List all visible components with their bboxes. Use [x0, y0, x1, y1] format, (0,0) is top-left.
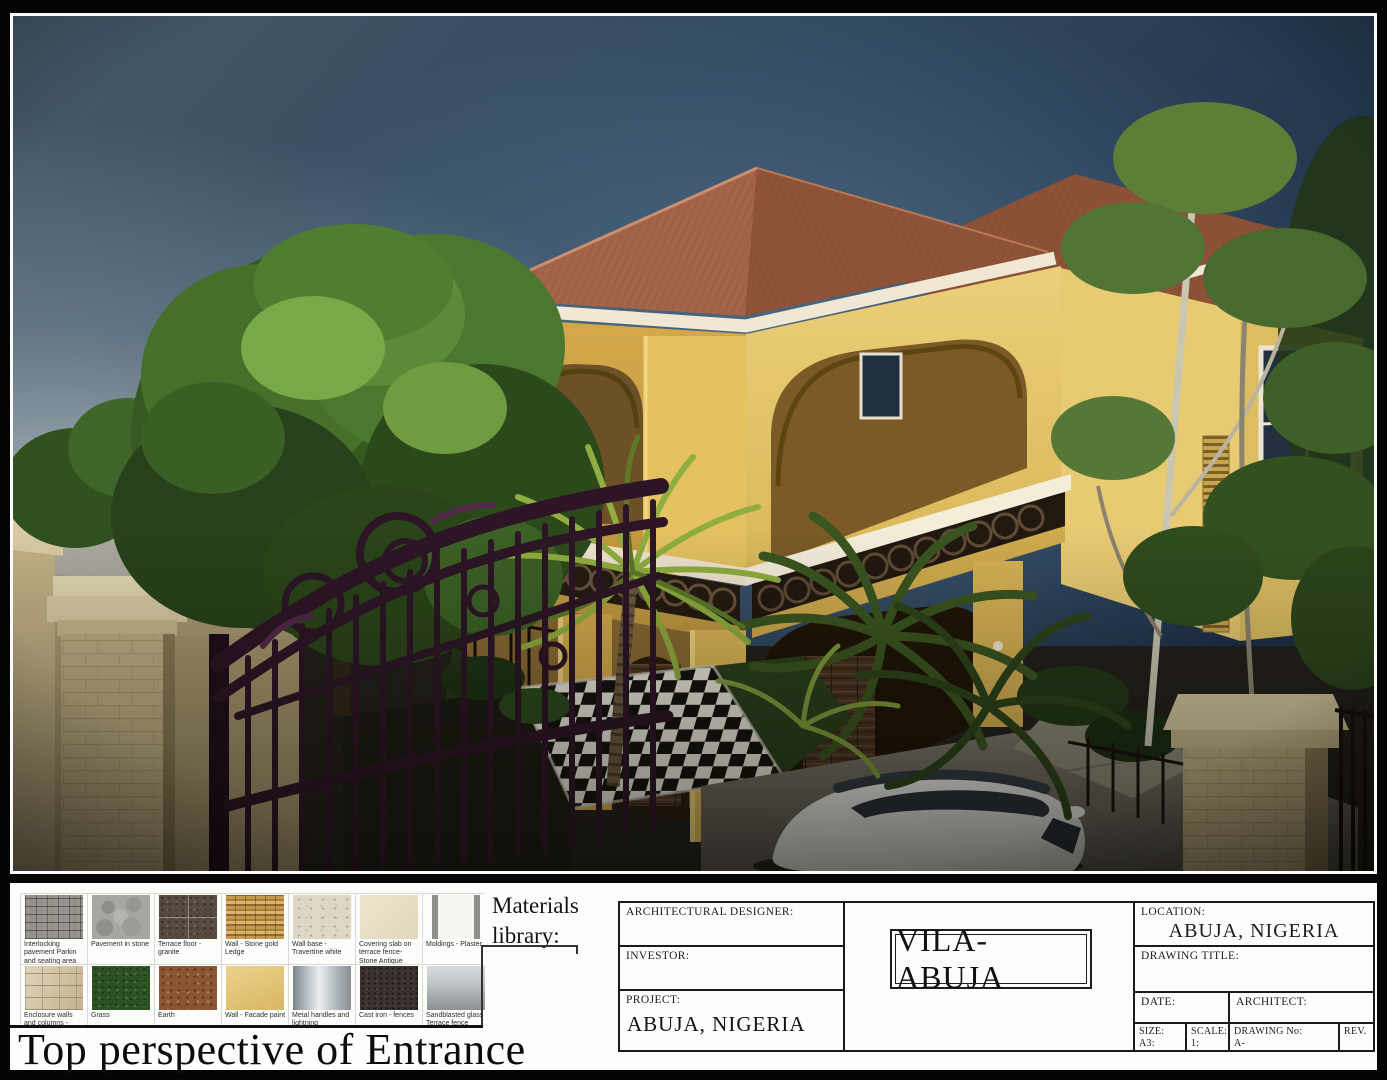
- entrance-render-frame: [10, 13, 1377, 874]
- drawing-no-value: A-: [1234, 1038, 1245, 1049]
- location-label: LOCATION:: [1135, 903, 1373, 918]
- scale-value: 1:: [1191, 1038, 1199, 1049]
- rev-label: REV.: [1340, 1024, 1373, 1038]
- material-item: Wall - Stone gold Ledge: [222, 894, 288, 964]
- rev-cell: REV.: [1340, 1024, 1373, 1050]
- material-swatch: [360, 966, 418, 1010]
- date-architect-row: DATE: ARCHITECT:: [1135, 993, 1373, 1024]
- material-label: Wall - Stone gold Ledge: [222, 940, 288, 958]
- material-item: Moldings - Plaster: [423, 894, 489, 964]
- material-item: Enclosure walls and columns - Tallish st…: [21, 965, 87, 1025]
- entrance-render-illustration: [13, 16, 1374, 871]
- sheet-footer: Interlocking pavement Parkin and seating…: [10, 883, 1377, 1070]
- size-cell: SIZE: A3:: [1135, 1024, 1187, 1050]
- material-label: Covering slab on terrace fence- Stone An…: [356, 940, 422, 964]
- material-item: Sandblasted glass Terrace fence: [423, 965, 489, 1025]
- project-label: PROJECT:: [620, 991, 843, 1006]
- drawing-no-cell: DRAWING No: A-: [1230, 1024, 1340, 1050]
- materials-callout-line: [481, 945, 578, 947]
- material-item: Cast iron - fences: [356, 965, 422, 1025]
- material-label: Metal handles and lightning: [289, 1011, 355, 1025]
- material-item: Earth: [155, 965, 221, 1025]
- date-cell: DATE:: [1135, 993, 1230, 1022]
- material-swatch: [427, 966, 485, 1010]
- project-value: ABUJA, NIGERIA: [620, 1006, 843, 1037]
- material-swatch: [25, 895, 83, 939]
- project-title-box: VILA-ABUJA: [890, 929, 1092, 989]
- material-swatch: [360, 895, 418, 939]
- material-swatch: [226, 895, 284, 939]
- title-block: ARCHITECTURAL DESIGNER: INVESTOR: PROJEC…: [618, 901, 1375, 1052]
- material-label: Sandblasted glass Terrace fence: [423, 1011, 489, 1025]
- title-block-center: VILA-ABUJA: [845, 903, 1135, 1050]
- material-label: Moldings - Plaster: [423, 940, 489, 949]
- materials-callout-line: [481, 945, 483, 1025]
- scale-label: SCALE:: [1191, 1026, 1227, 1037]
- investor-cell: INVESTOR:: [620, 947, 843, 991]
- material-swatch: [226, 966, 284, 1010]
- date-label: DATE:: [1135, 993, 1228, 1008]
- material-label: Pavement in stone: [88, 940, 154, 949]
- presentation-sheet: Interlocking pavement Parkin and seating…: [0, 0, 1387, 1080]
- material-label: Earth: [155, 1011, 221, 1020]
- drawing-no-label: DRAWING No:: [1234, 1026, 1302, 1037]
- material-label: Interlocking pavement Parkin and seating…: [21, 940, 87, 964]
- material-label: Wall - Facade paint: [222, 1011, 288, 1020]
- material-swatch: [159, 966, 217, 1010]
- size-scale-row: SIZE: A3: SCALE: 1: DRAWING No: A- REV.: [1135, 1024, 1373, 1050]
- project-title: VILA-ABUJA: [895, 934, 1087, 984]
- architect-label: ARCHITECT:: [1230, 993, 1373, 1008]
- drawing-title-cell: DRAWING TITLE:: [1135, 947, 1373, 993]
- size-label: SIZE:: [1139, 1026, 1164, 1037]
- material-label: Wall base - Travertine white: [289, 940, 355, 958]
- material-label: Grass: [88, 1011, 154, 1020]
- investor-label: INVESTOR:: [620, 947, 843, 962]
- location-cell: LOCATION: ABUJA, NIGERIA: [1135, 903, 1373, 947]
- project-cell: PROJECT: ABUJA, NIGERIA: [620, 991, 843, 1050]
- material-label: Terrace floor - granite: [155, 940, 221, 958]
- vignette-overlay: [13, 16, 1374, 871]
- scale-cell: SCALE: 1:: [1187, 1024, 1230, 1050]
- title-block-left: ARCHITECTURAL DESIGNER: INVESTOR: PROJEC…: [620, 903, 845, 1050]
- architectural-designer-cell: ARCHITECTURAL DESIGNER:: [620, 903, 843, 947]
- material-swatch: [293, 966, 351, 1010]
- material-item: Wall base - Travertine white: [289, 894, 355, 964]
- material-item: Interlocking pavement Parkin and seating…: [21, 894, 87, 964]
- material-swatch: [293, 895, 351, 939]
- materials-callout-line: [576, 945, 578, 954]
- materials-library-grid: Interlocking pavement Parkin and seating…: [20, 893, 484, 1026]
- drawing-title-label: DRAWING TITLE:: [1135, 947, 1373, 962]
- material-item: Terrace floor - granite: [155, 894, 221, 964]
- size-value: A3:: [1139, 1038, 1155, 1049]
- title-block-right: LOCATION: ABUJA, NIGERIA DRAWING TITLE: …: [1135, 903, 1373, 1050]
- material-swatch: [92, 895, 150, 939]
- materials-library-heading: Materials library:: [492, 891, 602, 951]
- sheet-title: Top perspective of Entrance: [18, 1024, 526, 1075]
- material-item: Wall - Facade paint: [222, 965, 288, 1025]
- material-swatch: [159, 895, 217, 939]
- material-label: Enclosure walls and columns - Tallish st…: [21, 1011, 87, 1025]
- material-swatch: [25, 966, 83, 1010]
- material-item: Grass: [88, 965, 154, 1025]
- material-item: Metal handles and lightning: [289, 965, 355, 1025]
- material-swatch: [92, 966, 150, 1010]
- architectural-designer-label: ARCHITECTURAL DESIGNER:: [620, 903, 843, 918]
- architect-cell: ARCHITECT:: [1230, 993, 1373, 1022]
- material-label: Cast iron - fences: [356, 1011, 422, 1020]
- material-swatch: [427, 895, 485, 939]
- location-value: ABUJA, NIGERIA: [1135, 918, 1373, 943]
- material-item: Pavement in stone: [88, 894, 154, 964]
- material-item: Covering slab on terrace fence- Stone An…: [356, 894, 422, 964]
